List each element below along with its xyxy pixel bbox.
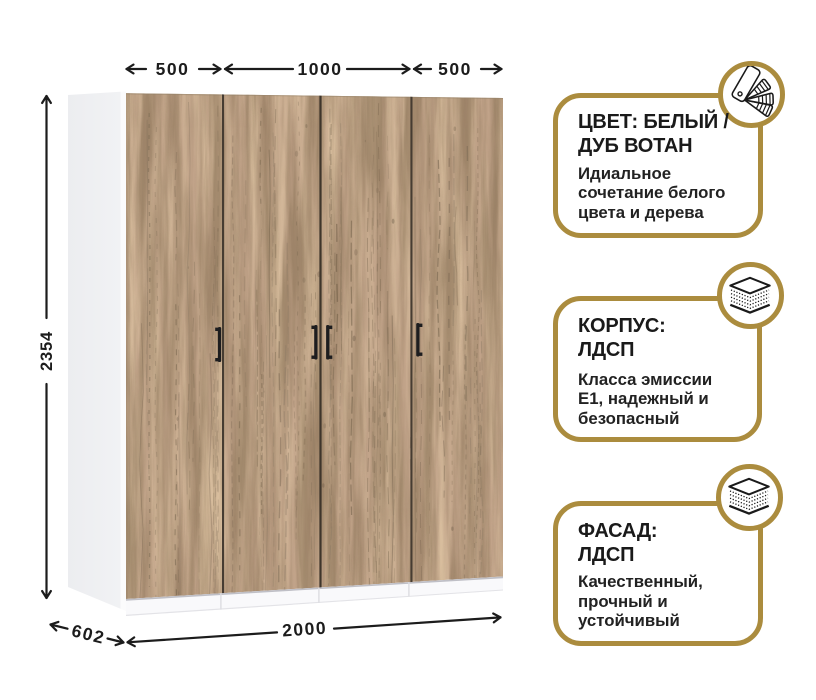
- svg-text:2354: 2354: [38, 331, 56, 371]
- svg-text:602: 602: [70, 620, 108, 648]
- svg-text:500: 500: [438, 59, 472, 79]
- svg-text:2000: 2000: [281, 618, 327, 641]
- svg-text:1000: 1000: [298, 59, 343, 79]
- svg-text:500: 500: [156, 59, 190, 79]
